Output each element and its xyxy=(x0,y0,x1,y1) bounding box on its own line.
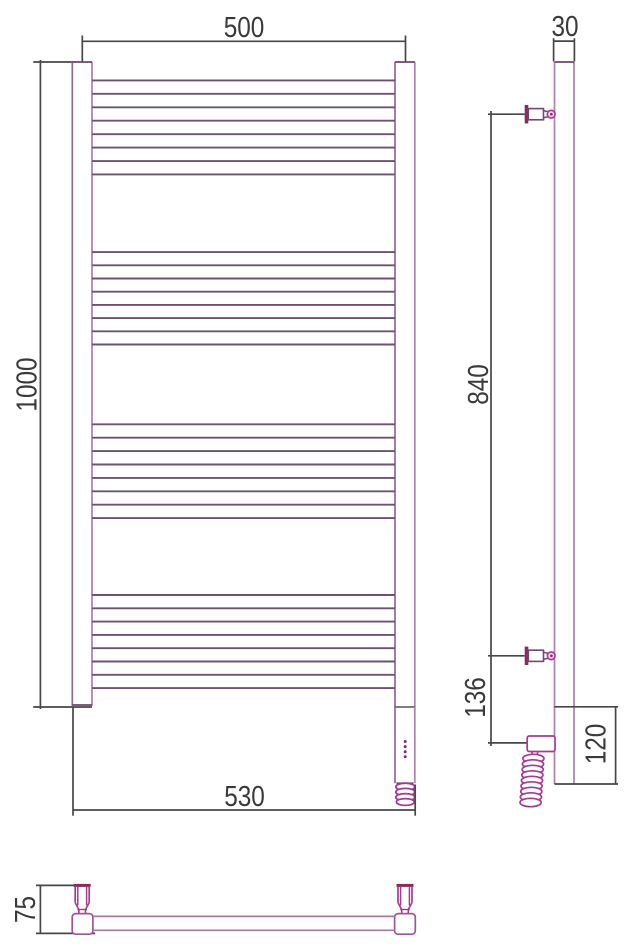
svg-text:30: 30 xyxy=(551,10,578,42)
svg-text:840: 840 xyxy=(462,364,494,405)
svg-text:75: 75 xyxy=(9,896,41,923)
svg-text:1000: 1000 xyxy=(10,357,42,411)
svg-text:500: 500 xyxy=(224,11,265,43)
svg-text:136: 136 xyxy=(459,677,491,718)
svg-text:120: 120 xyxy=(580,724,612,765)
svg-text:530: 530 xyxy=(224,780,265,812)
